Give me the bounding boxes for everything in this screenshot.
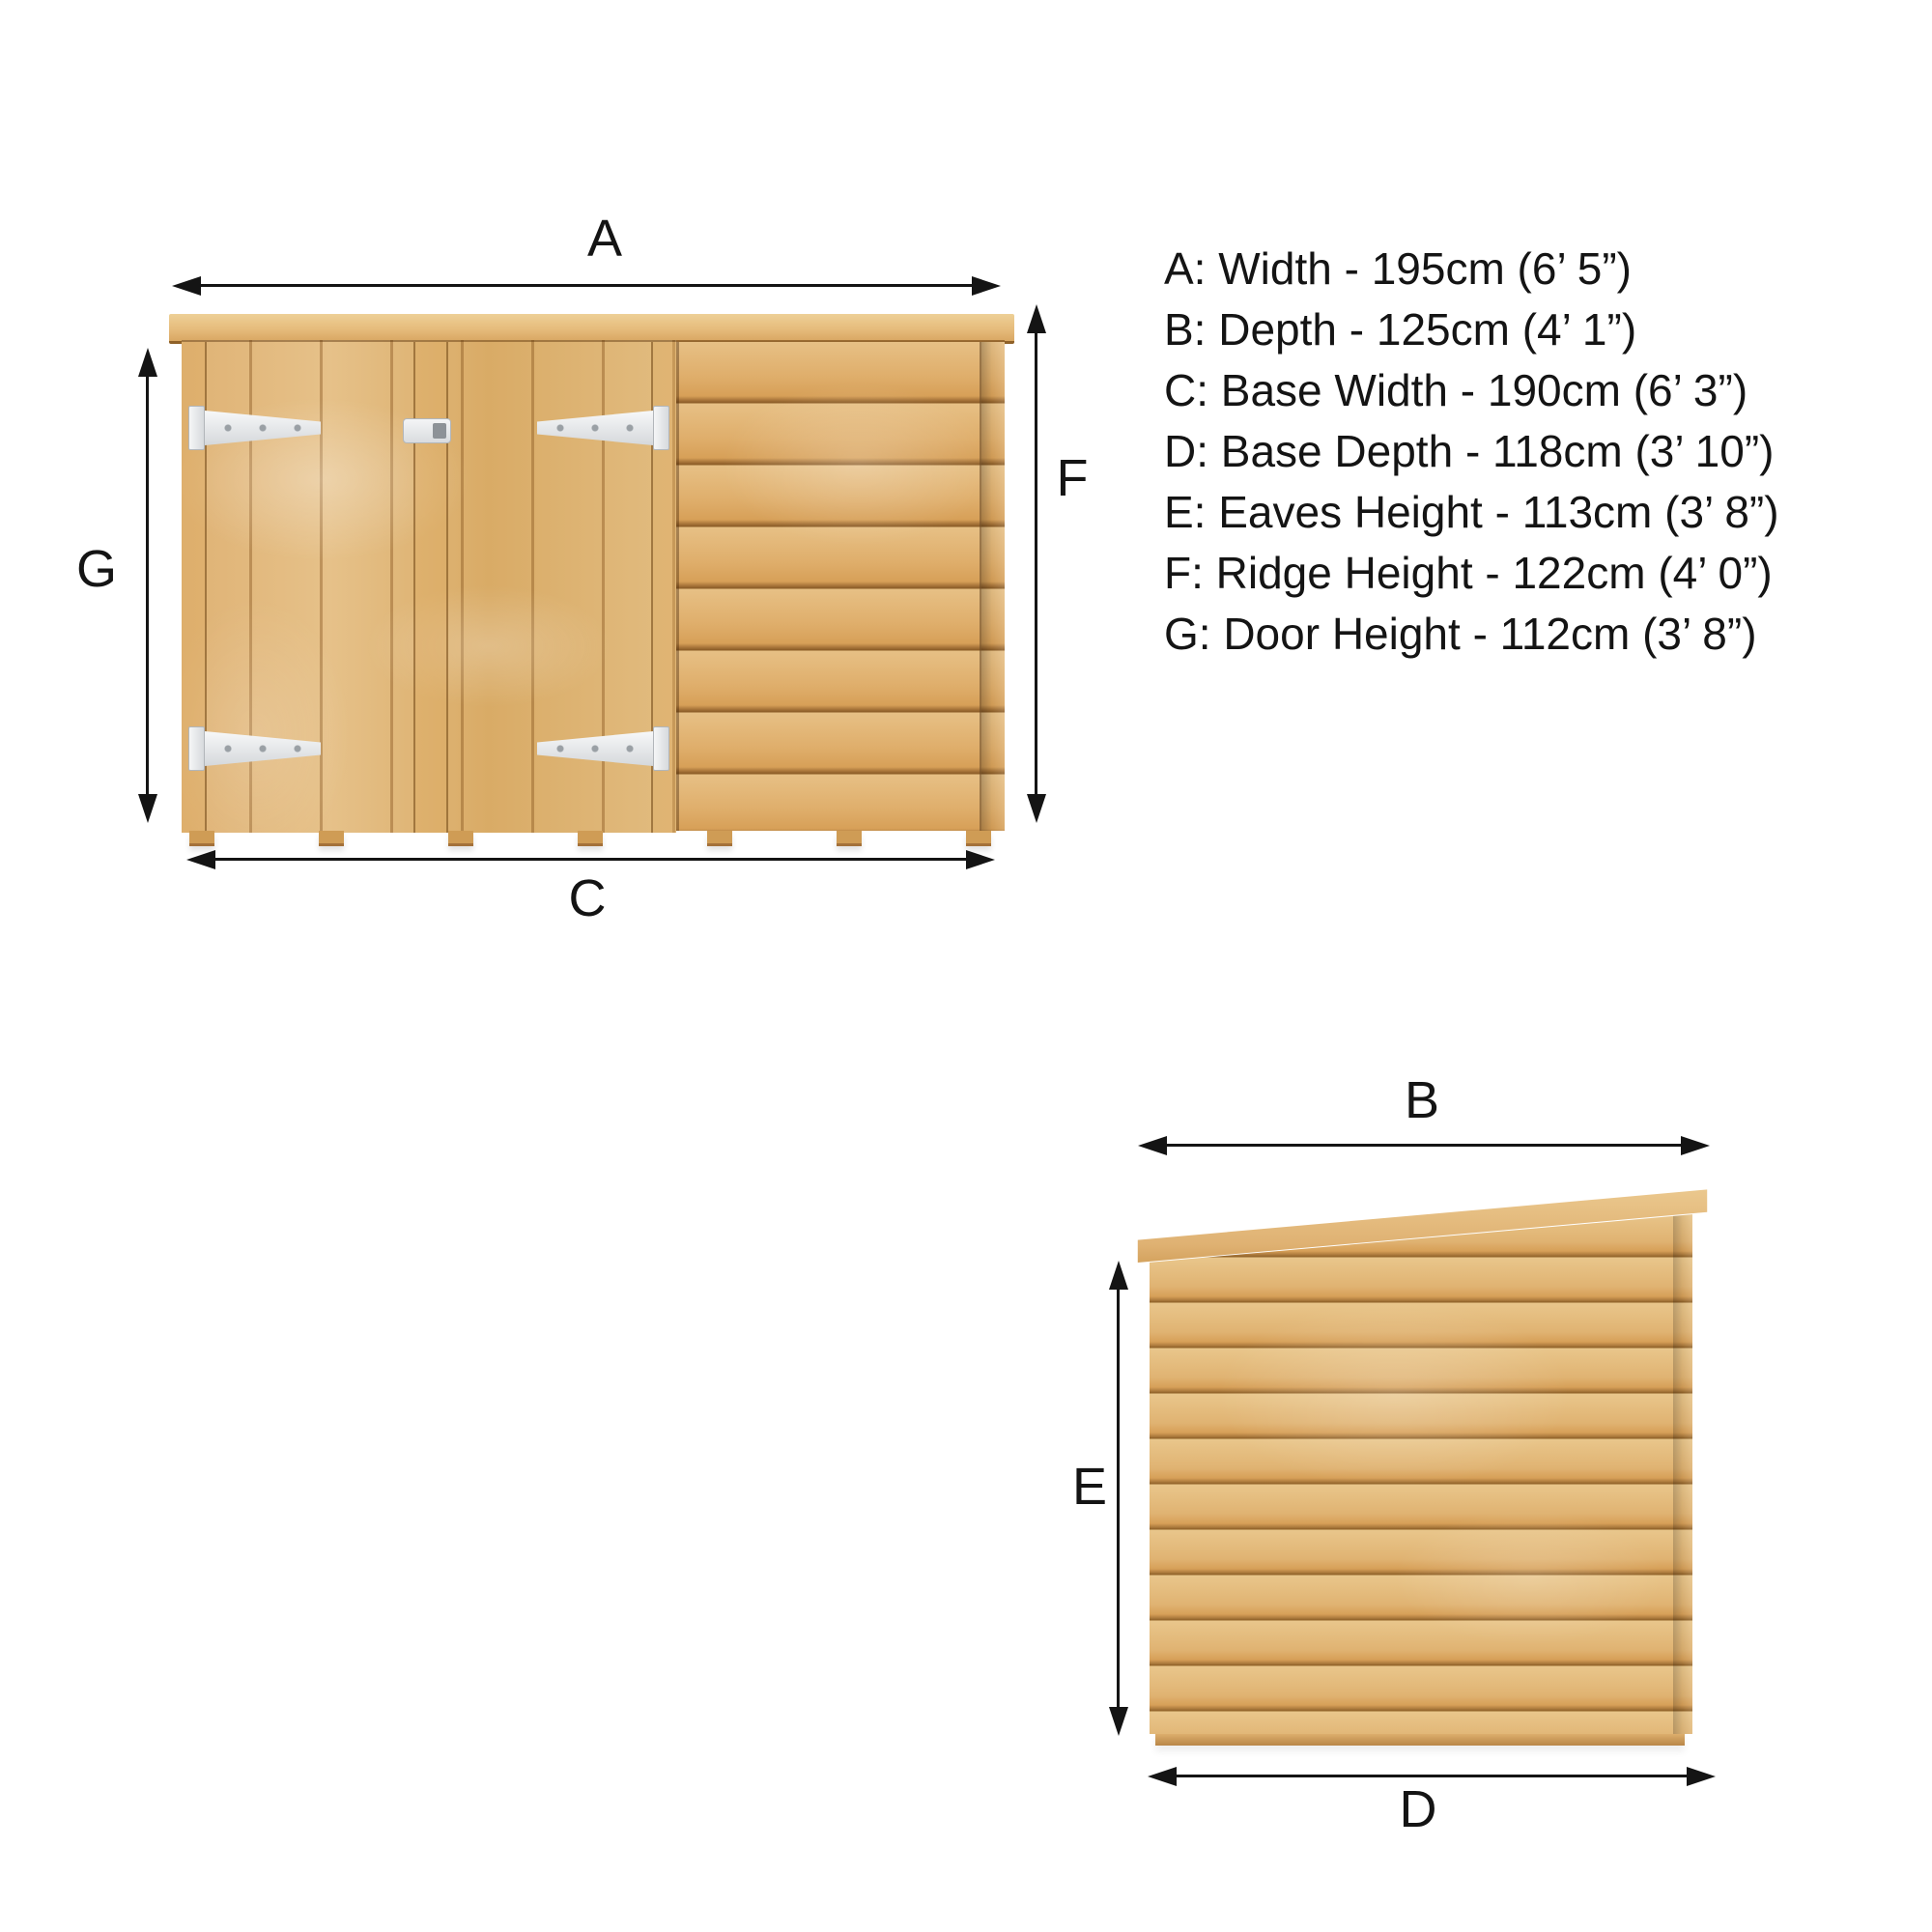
- side-corner-trim: [1673, 1212, 1692, 1734]
- hinge-plate-top-left: [188, 406, 205, 450]
- dim-arrow-depth-b: [1138, 1136, 1710, 1155]
- label-b: B: [1374, 1074, 1470, 1126]
- hinge-plate-bottom-left: [188, 726, 205, 771]
- overlap-cladding-panel: [676, 340, 1005, 831]
- shed-dimension-diagram: A G F C A: Width - 195cm (6’ 5”) B: Dept…: [0, 0, 1932, 1932]
- dimension-list: A: Width - 195cm (6’ 5”) B: Depth - 125c…: [1164, 239, 1779, 665]
- hasp-keeper: [433, 423, 446, 439]
- dimension-line-f: F: Ridge Height - 122cm (4’ 0”): [1164, 543, 1779, 604]
- hinge-plate-bottom-right: [653, 726, 669, 771]
- label-c: C: [539, 872, 636, 924]
- hinge-plate-top-right: [653, 406, 669, 450]
- base-foot: [578, 831, 603, 846]
- label-g: G: [48, 543, 145, 595]
- dimension-line-d: D: Base Depth - 118cm (3’ 10”): [1164, 421, 1779, 482]
- door-frame-center: [413, 342, 448, 833]
- corner-trim: [980, 342, 1005, 831]
- label-e: E: [1041, 1461, 1138, 1513]
- base-foot: [189, 831, 214, 846]
- base-foot: [966, 831, 991, 846]
- dim-arrow-width-a: [172, 276, 1001, 296]
- label-a: A: [556, 213, 653, 265]
- dim-arrow-ridge-height-f: [1027, 304, 1046, 823]
- dimension-line-a: A: Width - 195cm (6’ 5”): [1164, 239, 1779, 299]
- dimension-line-e: E: Eaves Height - 113cm (3’ 8”): [1164, 482, 1779, 543]
- dimension-line-c: C: Base Width - 190cm (6’ 3”): [1164, 360, 1779, 421]
- label-d: D: [1370, 1783, 1466, 1835]
- side-base: [1155, 1734, 1685, 1746]
- base-foot: [837, 831, 862, 846]
- label-f: F: [1024, 452, 1121, 504]
- base-foot: [319, 831, 344, 846]
- side-wall-cladding: [1150, 1212, 1692, 1734]
- dimension-line-g: G: Door Height - 112cm (3’ 8”): [1164, 604, 1779, 665]
- base-foot: [707, 831, 732, 846]
- front-wall: [182, 340, 1005, 831]
- door-hasp-latch: [403, 418, 451, 443]
- dimension-line-b: B: Depth - 125cm (4’ 1”): [1164, 299, 1779, 360]
- dim-arrow-base-width-c: [186, 850, 995, 869]
- base-foot: [448, 831, 473, 846]
